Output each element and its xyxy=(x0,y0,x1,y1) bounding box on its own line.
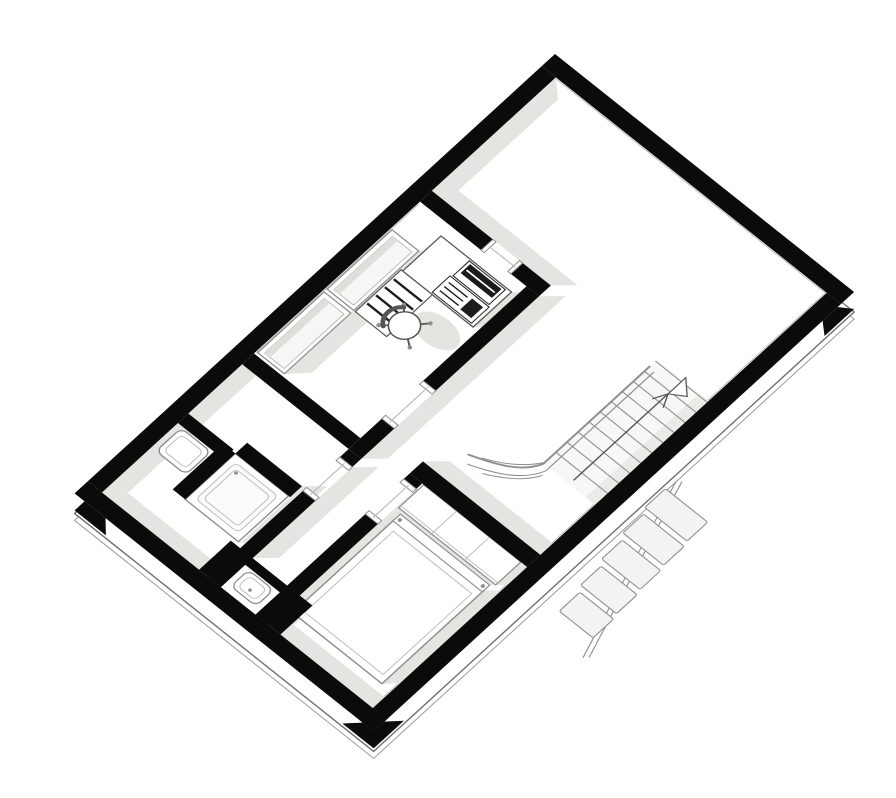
axonometric-floorplan xyxy=(0,0,896,798)
floorplan-canvas xyxy=(0,0,896,798)
plan-layer xyxy=(75,54,855,731)
